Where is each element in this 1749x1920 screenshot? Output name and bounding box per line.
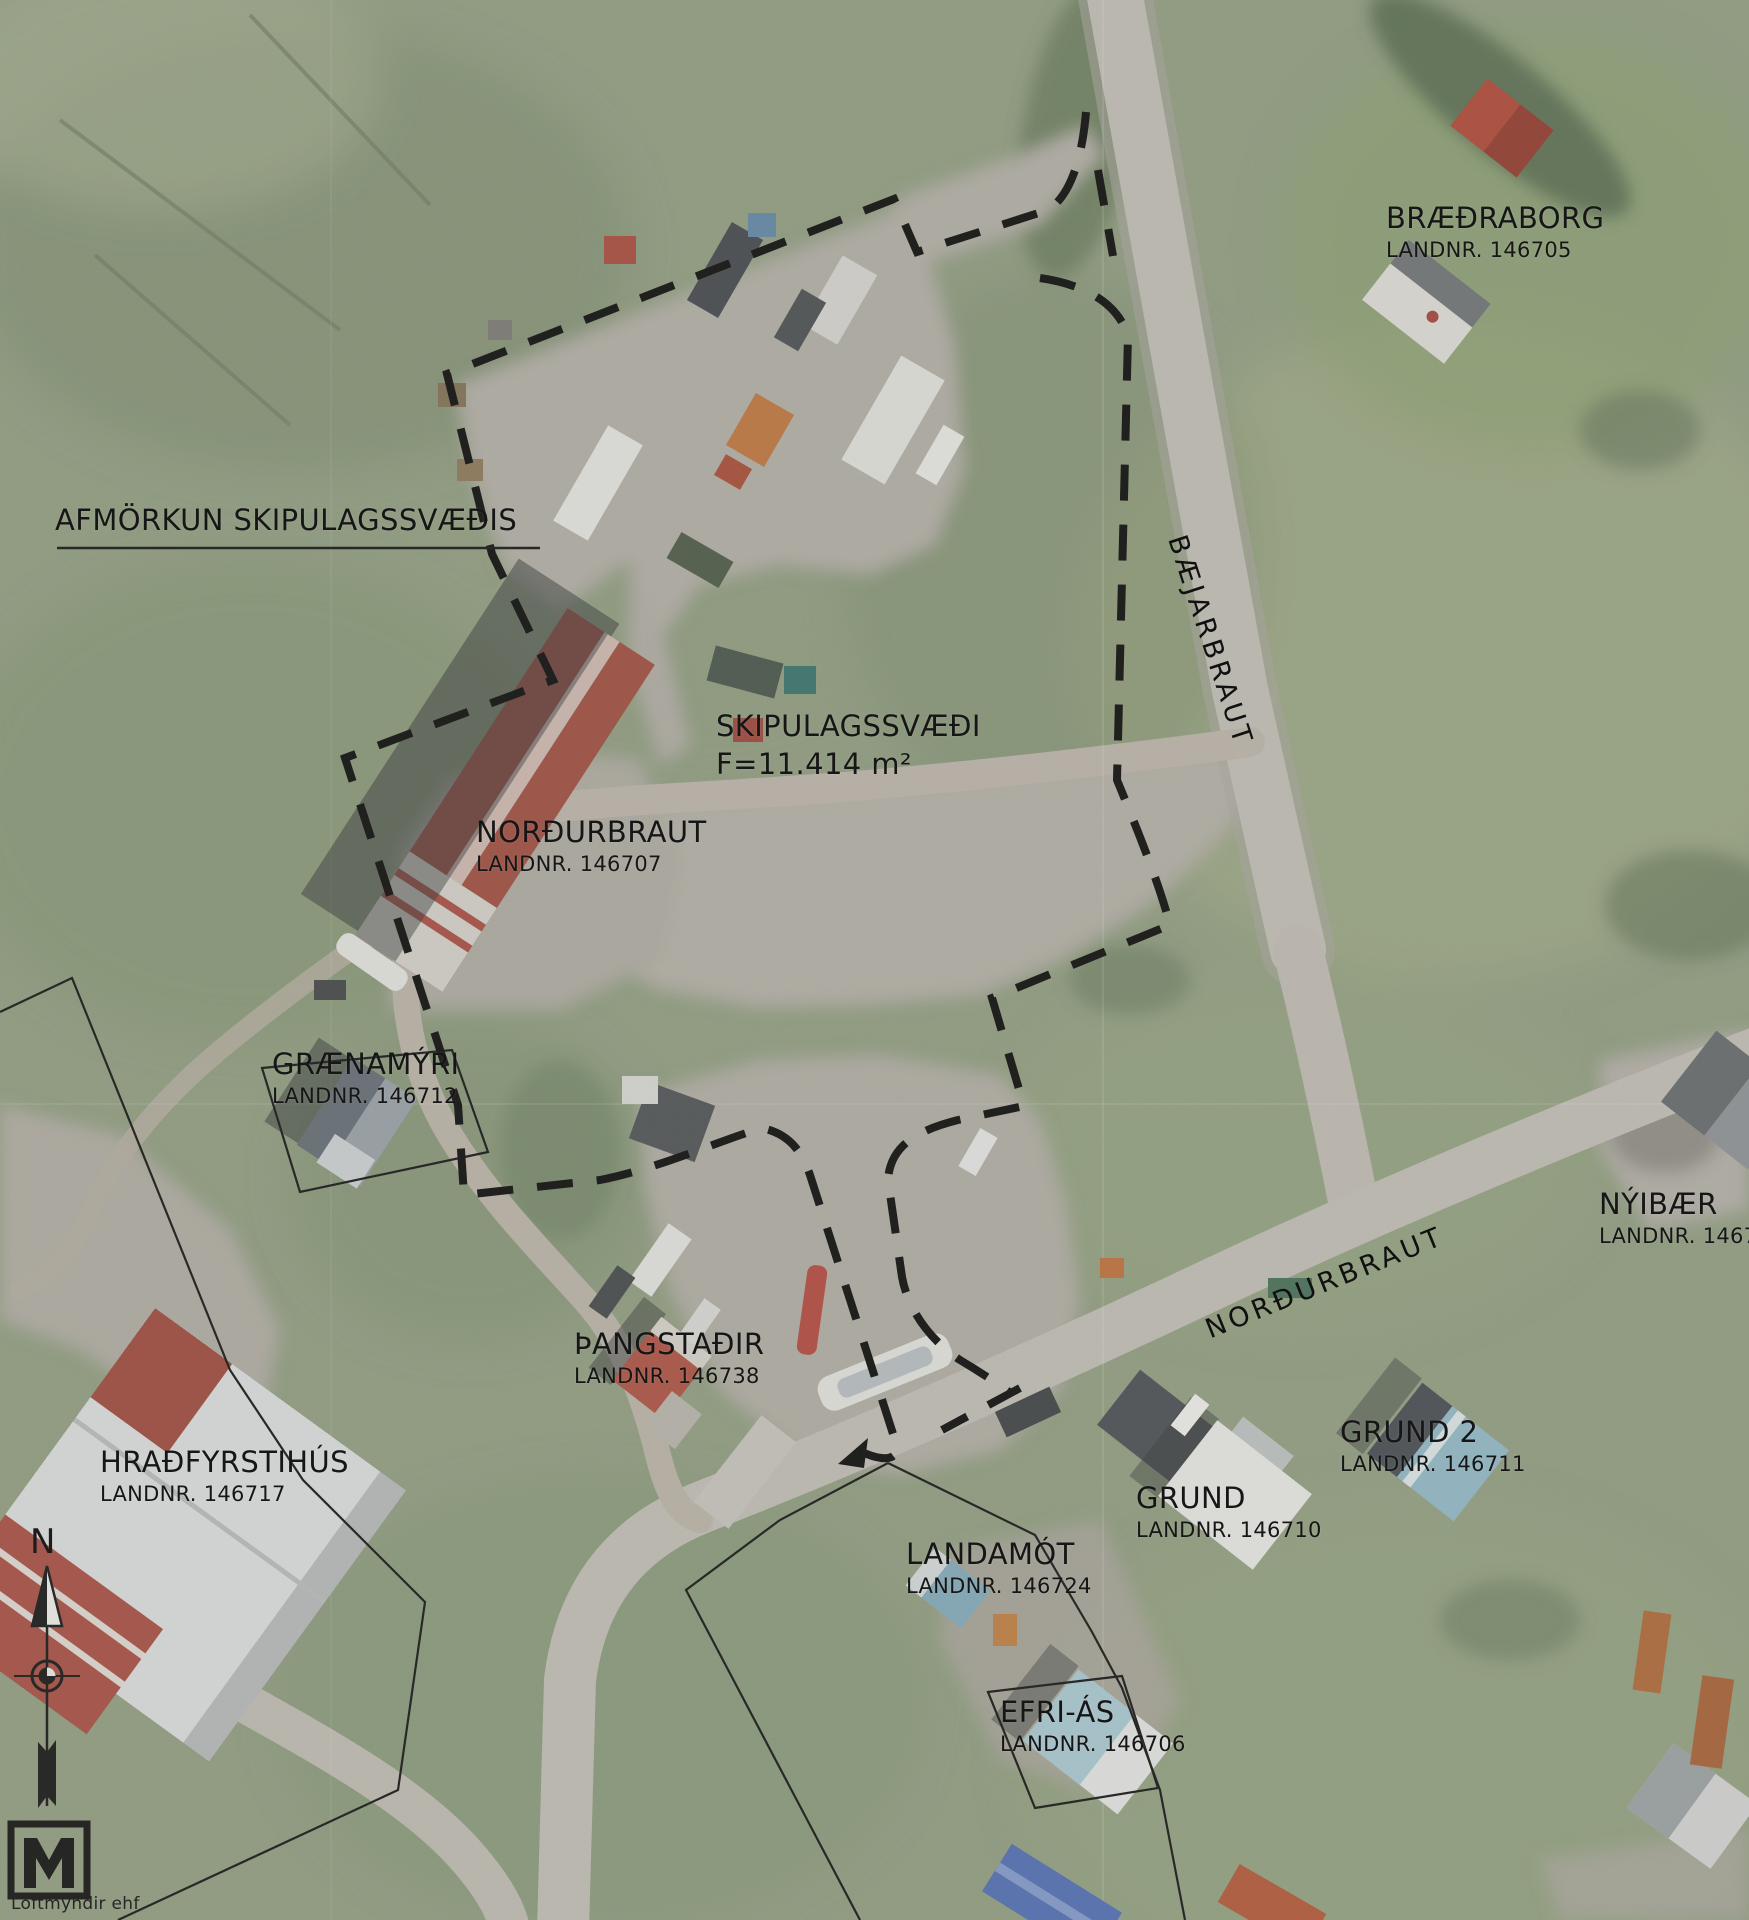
planning-area-size: F=11.414 m² [716,748,981,780]
credit-text: Loftmyndir ehf [11,1894,140,1914]
label-planning-area: SKIPULAGSSVÆÐI F=11.414 m² [716,710,981,781]
label-parcel-nordurbraut: NORÐURBRAUT LANDNR. 146707 [476,816,707,877]
label-parcel-graenamyri: GRÆNAMÝRI LANDNR. 146712 [272,1048,459,1109]
planning-area-name: SKIPULAGSSVÆÐI [716,710,981,742]
north-label: N [30,1522,56,1562]
label-parcel-grund2: GRUND 2 LANDNR. 146711 [1340,1416,1526,1477]
planning-map: AFMÖRKUN SKIPULAGSSVÆÐIS SKIPULAGSSVÆÐI … [0,0,1749,1920]
label-parcel-efrias: EFRI-ÁS LANDNR. 146706 [1000,1696,1186,1757]
photo-grain [0,0,1749,1920]
label-parcel-braedraborg: BRÆÐRABORG LANDNR. 146705 [1386,202,1604,263]
label-parcel-thangstadir: ÞANGSTAÐIR LANDNR. 146738 [574,1328,764,1389]
label-parcel-nyibaer: NÝIBÆR LANDNR. 146729 [1599,1188,1749,1249]
label-parcel-landamot: LANDAMÓT LANDNR. 146724 [906,1538,1092,1599]
label-parcel-grund: GRUND LANDNR. 146710 [1136,1482,1322,1543]
label-parcel-hradfyrstihus: HRAÐFYRSTIHÚS LANDNR. 146717 [100,1446,349,1507]
aerial-photo [0,0,1749,1920]
title-text: AFMÖRKUN SKIPULAGSSVÆÐIS [55,504,517,536]
title-afmorkun: AFMÖRKUN SKIPULAGSSVÆÐIS [55,504,517,536]
